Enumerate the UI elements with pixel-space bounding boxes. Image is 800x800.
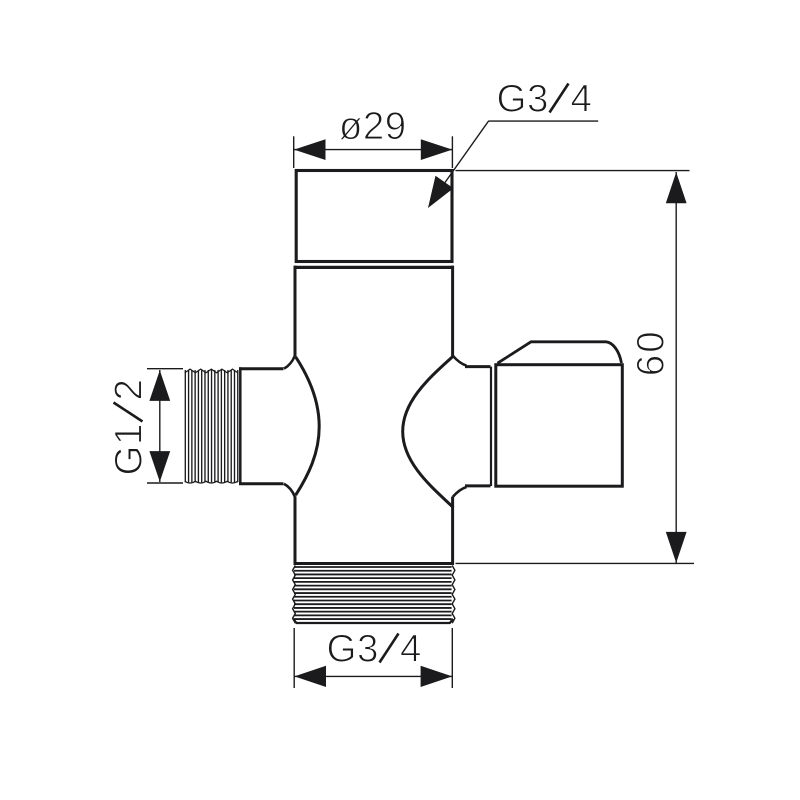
svg-text:4: 4 xyxy=(571,78,592,121)
svg-text:G3: G3 xyxy=(327,628,379,671)
svg-text:G3: G3 xyxy=(497,78,549,121)
svg-text:60: 60 xyxy=(630,329,673,376)
svg-text:4: 4 xyxy=(400,628,421,671)
svg-text:2: 2 xyxy=(108,379,151,400)
svg-text:ø29: ø29 xyxy=(339,105,407,148)
svg-text:G1: G1 xyxy=(108,423,151,475)
